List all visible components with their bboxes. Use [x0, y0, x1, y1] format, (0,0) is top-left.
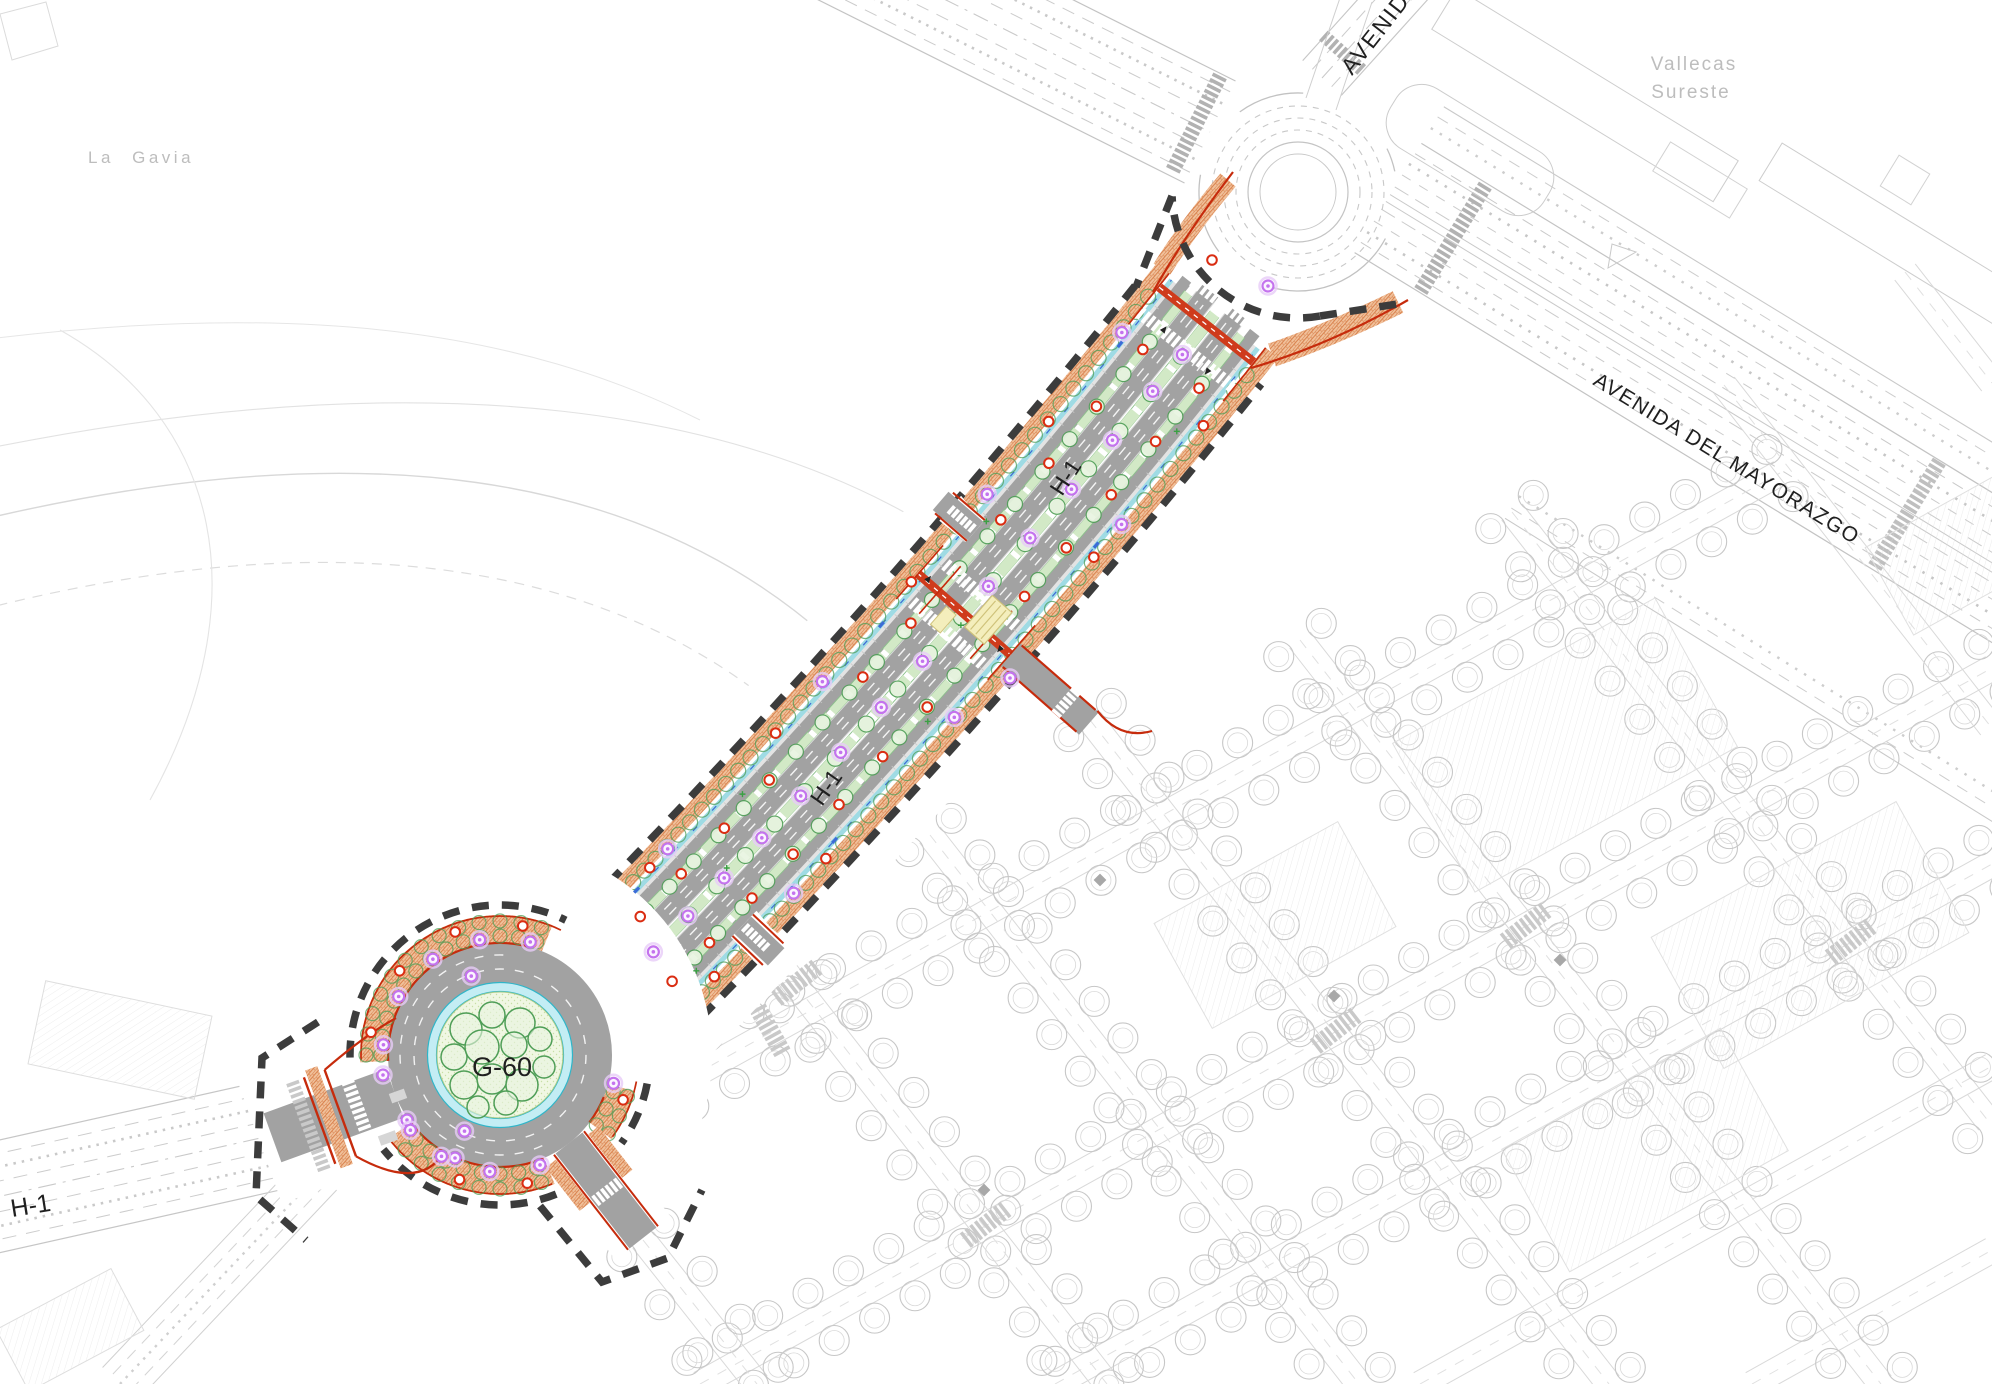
label-g60: G-60	[472, 1052, 532, 1082]
plan-canvas: La Gavia Vallecas Sureste AVENIDA AVENID…	[0, 0, 1992, 1384]
label-la-gavia: La Gavia	[88, 148, 194, 167]
urbanization-plan-map: La Gavia Vallecas Sureste AVENIDA AVENID…	[0, 0, 1992, 1384]
building-blocks	[1154, 475, 1992, 1272]
label-vallecas-line2: Sureste	[1651, 82, 1730, 103]
project-works-layer	[238, 172, 1408, 1282]
label-avenida-top: AVENIDA	[1335, 0, 1425, 79]
label-vallecas-line1: Vallecas	[1651, 54, 1737, 75]
label-h1-west: H-1	[9, 1189, 53, 1223]
